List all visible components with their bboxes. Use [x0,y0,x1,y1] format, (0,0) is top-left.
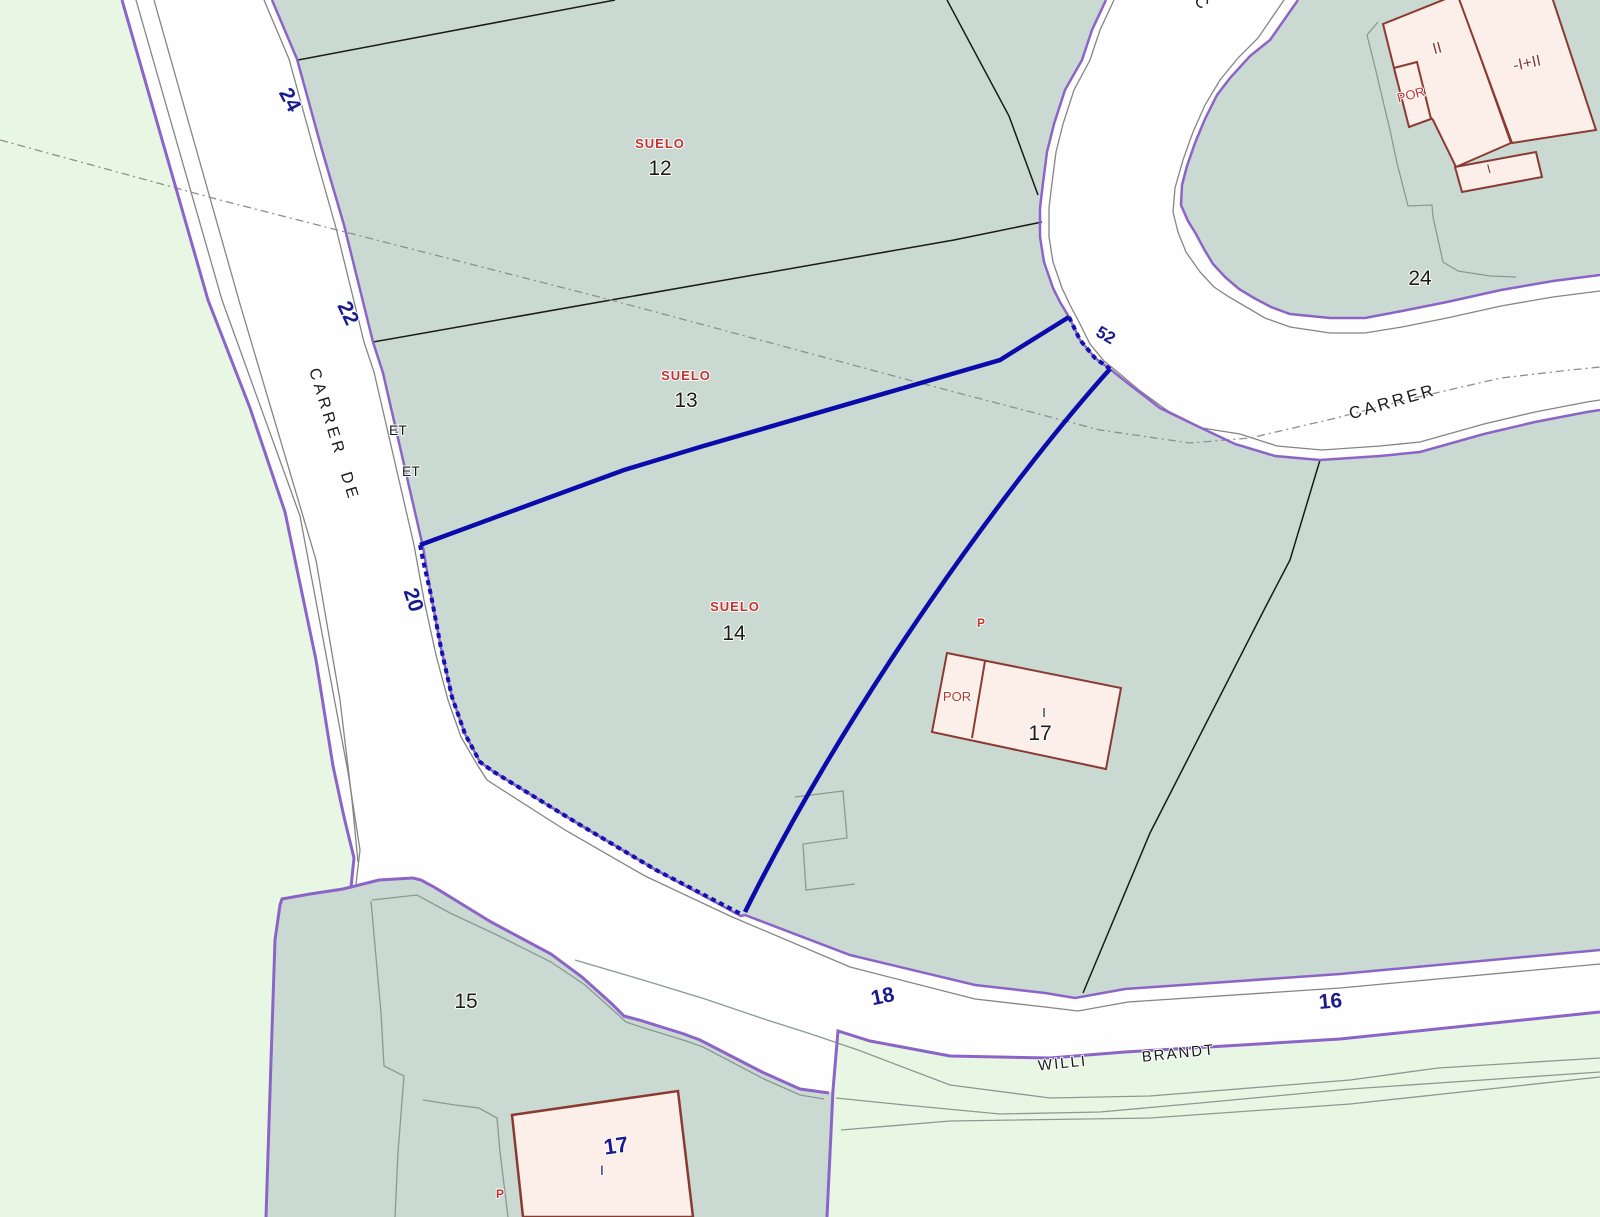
svg-text:17: 17 [602,1131,630,1159]
svg-text:POR: POR [943,689,971,704]
svg-text:SUELO: SUELO [661,368,711,383]
svg-text:12: 12 [648,157,671,180]
svg-text:I: I [1042,705,1046,720]
svg-text:17: 17 [1028,722,1051,745]
svg-text:ET: ET [389,422,407,438]
svg-text:P: P [977,616,985,630]
svg-text:SUELO: SUELO [710,599,760,614]
svg-text:24: 24 [1408,267,1432,290]
svg-text:P: P [496,1187,504,1201]
svg-text:15: 15 [454,990,477,1013]
svg-text:SUELO: SUELO [635,136,685,151]
svg-text:14: 14 [722,622,746,645]
svg-text:16: 16 [1318,989,1343,1014]
svg-text:13: 13 [674,389,697,412]
svg-text:I: I [600,1162,604,1178]
svg-text:ET: ET [402,463,420,479]
